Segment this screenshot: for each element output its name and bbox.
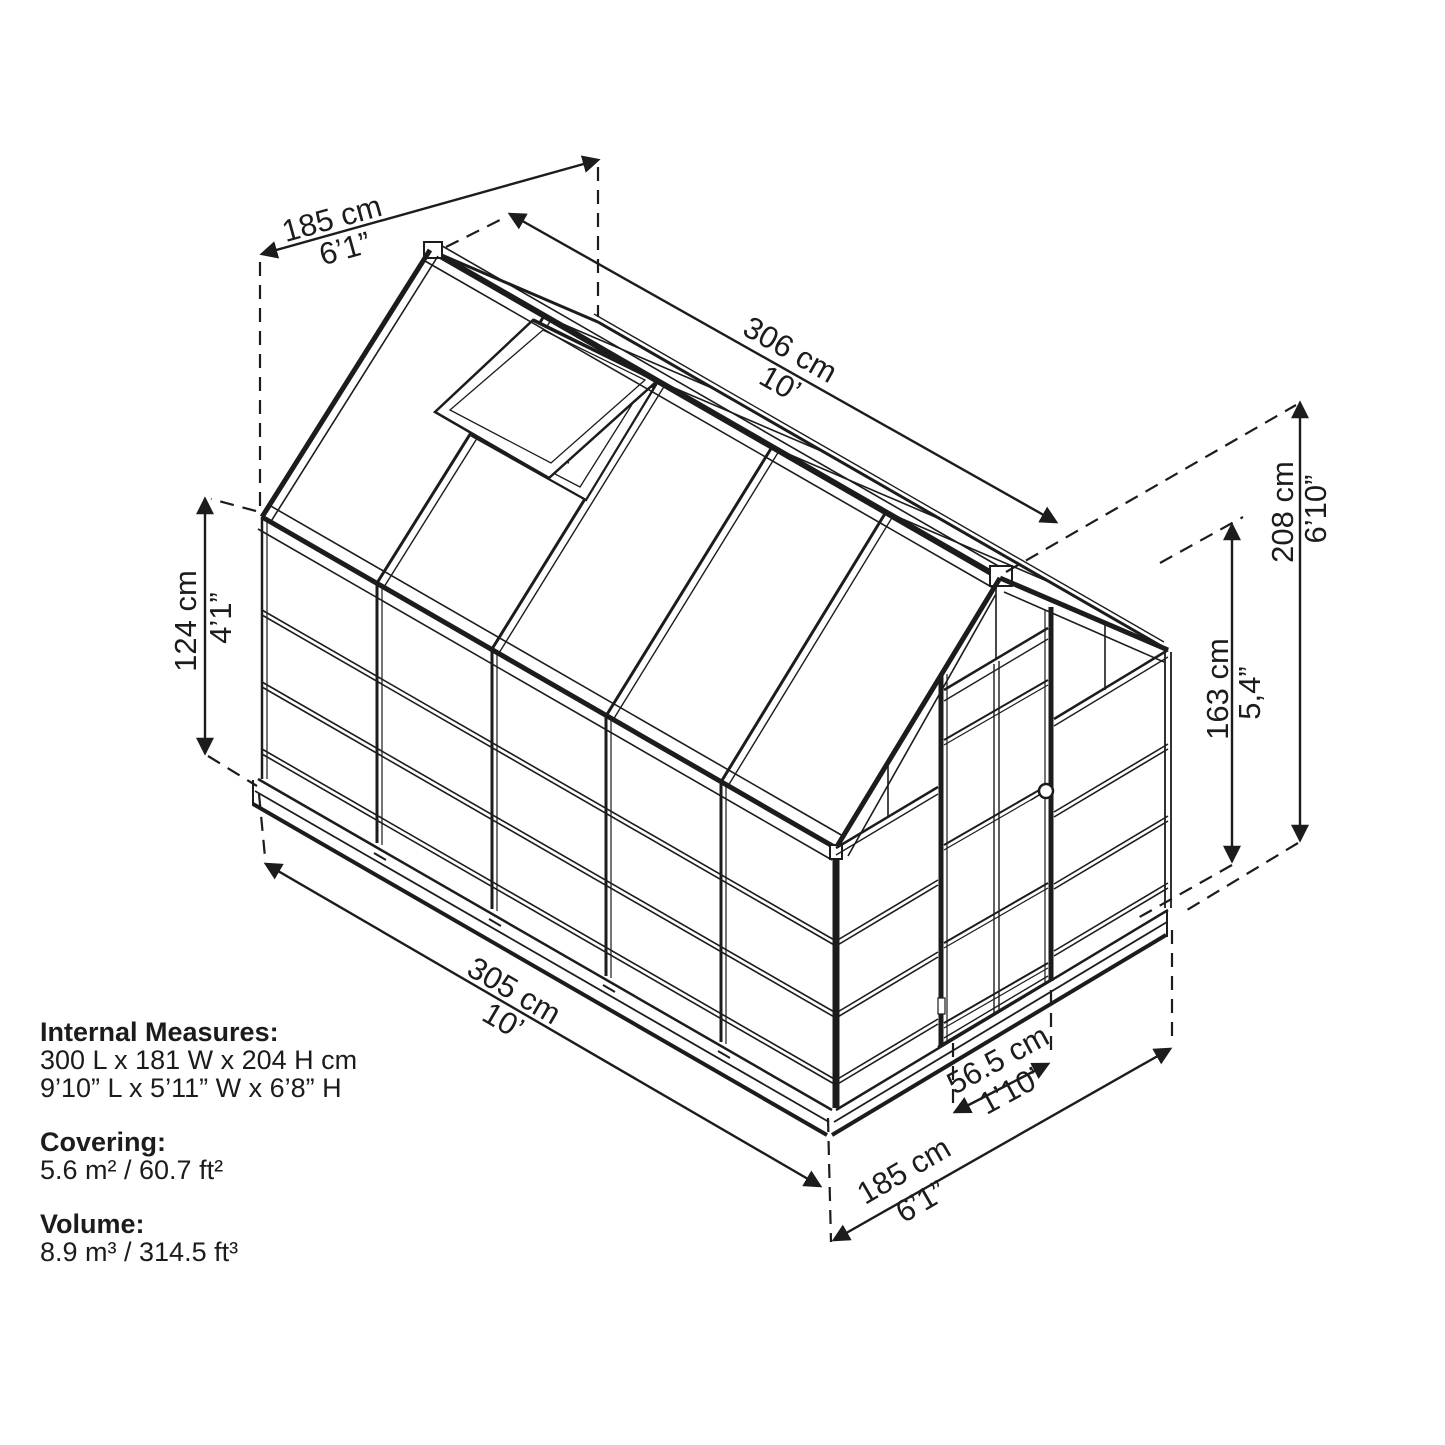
near-gable-roof-edges (836, 578, 1168, 848)
spacer (40, 1102, 357, 1128)
spacer (40, 1184, 357, 1210)
internal-measures-imperial: 9’10” L x 5’11” W x 6’8” H (40, 1074, 357, 1102)
gable-eave-beam-inner (836, 657, 1168, 855)
label-panel-height-imperial: 4’1” (203, 592, 238, 644)
near-gable-roof-edge-inner (848, 592, 1164, 856)
door-rails (944, 680, 1048, 1023)
label-panel-height-metric: 124 cm (168, 570, 203, 672)
covering-heading: Covering: (40, 1128, 357, 1156)
greenhouse-structure (253, 242, 1171, 1135)
covering-value: 5.6 m² / 60.7 ft² (40, 1156, 357, 1184)
door-handle (1039, 784, 1053, 798)
door-jambs (941, 607, 1051, 1045)
right-corner-post (1165, 652, 1171, 908)
ext-roof-length-start (446, 217, 506, 247)
ext-front-corner-vertical (828, 1118, 831, 1242)
ext-panel-height-bottom (208, 756, 257, 786)
door-latch-plate (938, 998, 945, 1014)
far-gable-edge (262, 250, 430, 517)
ext-panel-height-top (211, 499, 256, 511)
specs-block: Internal Measures: 300 L x 181 W x 204 H… (40, 1018, 357, 1266)
wall-mullion-inner-lines (382, 585, 726, 1044)
base-anchor-ticks (374, 853, 730, 1058)
door-handle-stem (1031, 795, 1039, 800)
ext-eave-height-top (1160, 517, 1243, 563)
far-eave-inner-line (594, 314, 1164, 642)
internal-measures-metric: 300 L x 181 W x 204 H cm (40, 1046, 357, 1074)
volume-value: 8.9 m³ / 314.5 ft³ (40, 1238, 357, 1266)
label-eave-height-metric: 163 cm (1200, 638, 1235, 740)
far-gable-edge-inner (270, 256, 438, 523)
ext-ridge-height-bottom (1182, 843, 1298, 913)
gable-eave-beams (836, 650, 1168, 848)
label-eave-height-imperial: 5,4” (1232, 666, 1267, 719)
ext-base-length-start (259, 794, 265, 857)
volume-heading: Volume: (40, 1210, 357, 1238)
label-ridge-height-imperial: 6’10” (1298, 475, 1333, 544)
ext-ridge-height-top (1006, 405, 1296, 572)
greenhouse-dimension-diagram: 185 cm 6’1” 306 cm 10’ 124 cm 4’1” 208 c… (0, 0, 1445, 1445)
internal-measures-heading: Internal Measures: (40, 1018, 357, 1046)
door-rail-inner-lines (944, 685, 1048, 1028)
label-ridge-height-metric: 208 cm (1265, 461, 1300, 563)
